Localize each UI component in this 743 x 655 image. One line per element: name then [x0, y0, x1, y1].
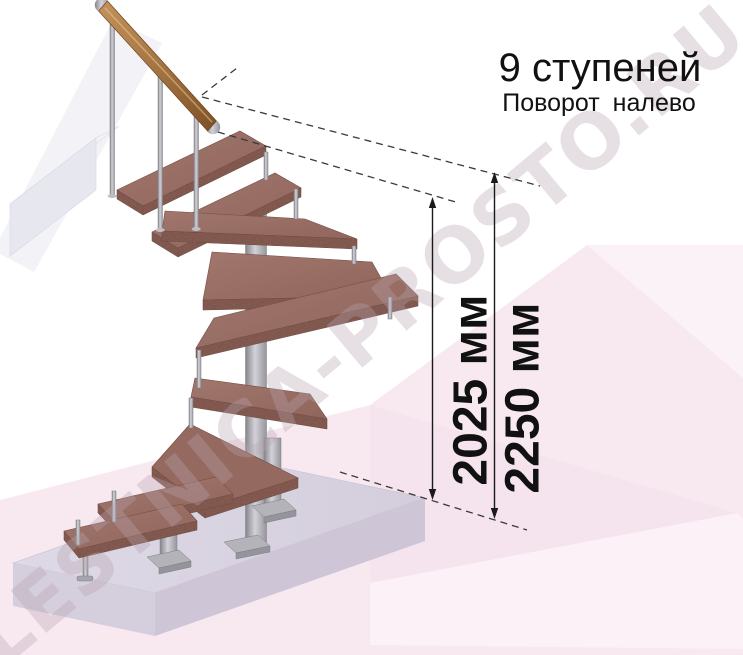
page-title: 9 ступеней — [499, 46, 702, 90]
dimension-label-2250: 2250 мм — [497, 302, 550, 493]
dimension-label-2025: 2025 мм — [445, 294, 498, 485]
staircase-illustration: LESTNICA-PROSTO.RU 2025 мм 2250 мм 9 сту… — [0, 0, 743, 655]
staircase-diagram-page: LESTNICA-PROSTO.RU 2025 мм 2250 мм 9 сту… — [0, 0, 743, 655]
wall-beam — [0, 20, 162, 272]
page-subtitle: Поворот налево — [502, 89, 696, 117]
title-block: 9 ступеней Поворот налево — [499, 46, 702, 117]
